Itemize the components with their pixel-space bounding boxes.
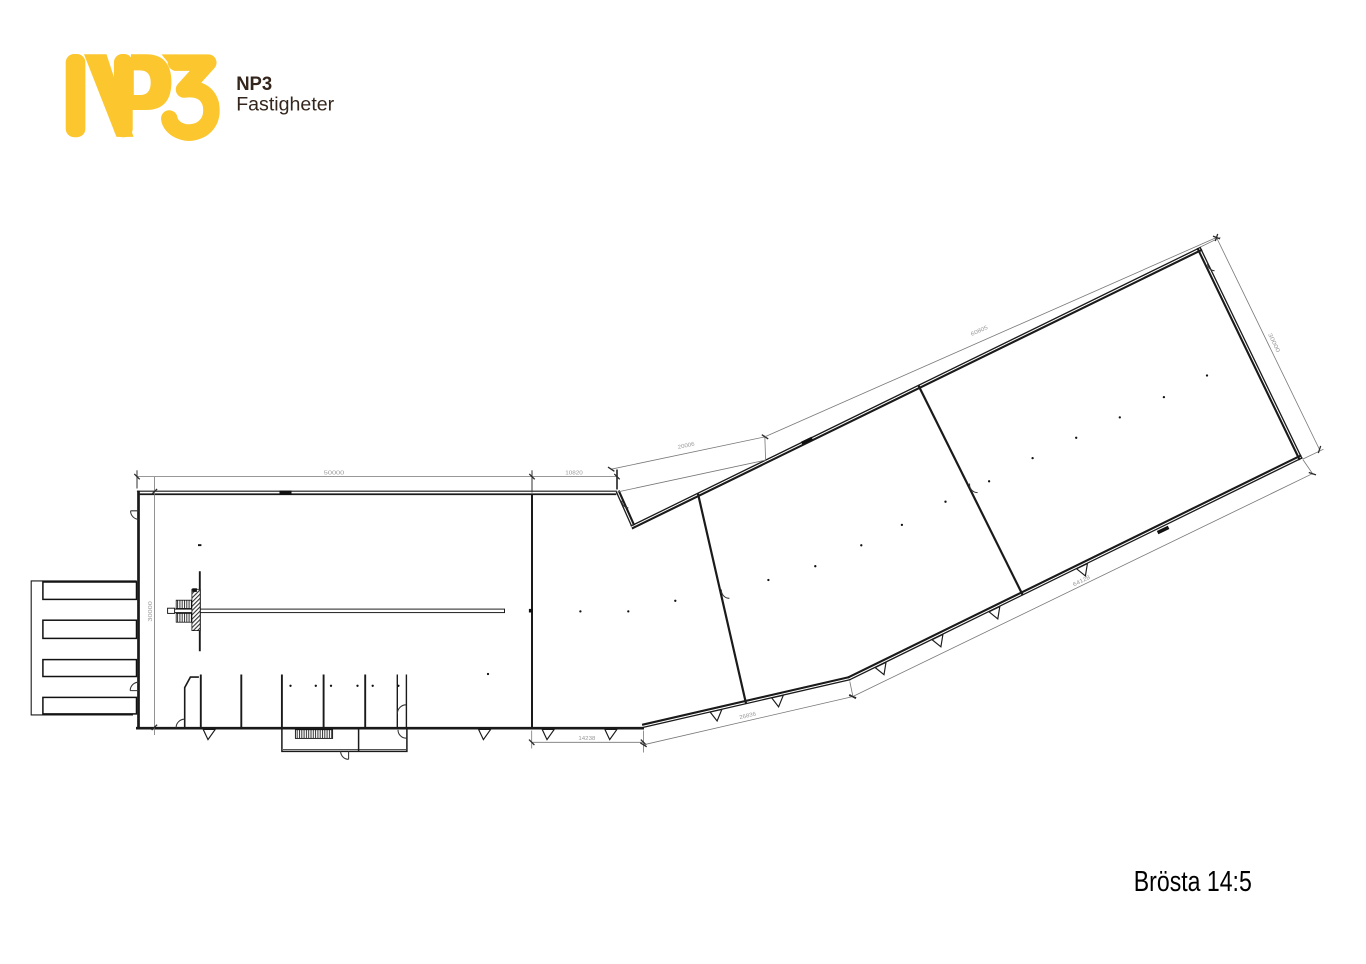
svg-text:10820: 10820 [565, 470, 583, 476]
svg-text:Fastigheter: Fastigheter [236, 94, 334, 116]
svg-text:50000: 50000 [324, 470, 345, 476]
svg-text:Brösta 14:5: Brösta 14:5 [1134, 866, 1252, 898]
svg-text:NP3: NP3 [236, 74, 272, 95]
svg-text:14238: 14238 [578, 736, 595, 742]
svg-text:30000: 30000 [148, 601, 154, 622]
